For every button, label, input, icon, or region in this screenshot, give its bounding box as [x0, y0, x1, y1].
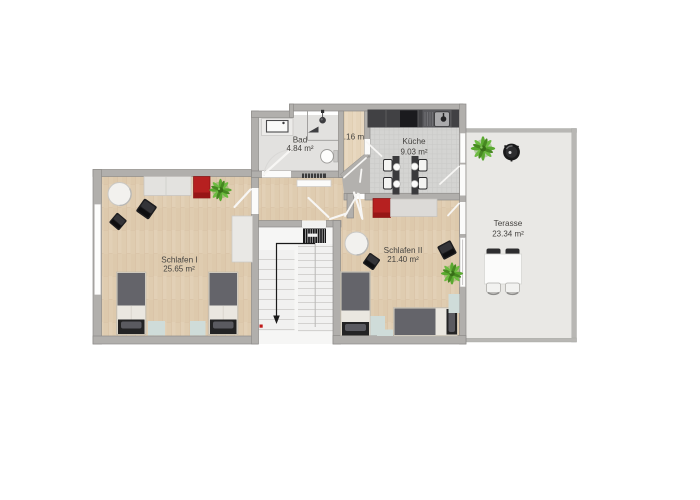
svg-text:25.65 m²: 25.65 m²	[163, 265, 195, 274]
svg-text:23.34 m²: 23.34 m²	[492, 229, 524, 238]
svg-text:9.03 m²: 9.03 m²	[400, 147, 427, 156]
svg-text:Küche: Küche	[402, 137, 426, 146]
svg-text:Schlafen II: Schlafen II	[384, 246, 423, 255]
svg-text:4.84 m²: 4.84 m²	[286, 144, 313, 153]
svg-text:Terasse: Terasse	[494, 219, 523, 228]
svg-text:21.40 m²: 21.40 m²	[387, 255, 419, 264]
svg-text:.16 m: .16 m	[344, 132, 365, 141]
svg-text:Schlafen I: Schlafen I	[161, 256, 197, 265]
